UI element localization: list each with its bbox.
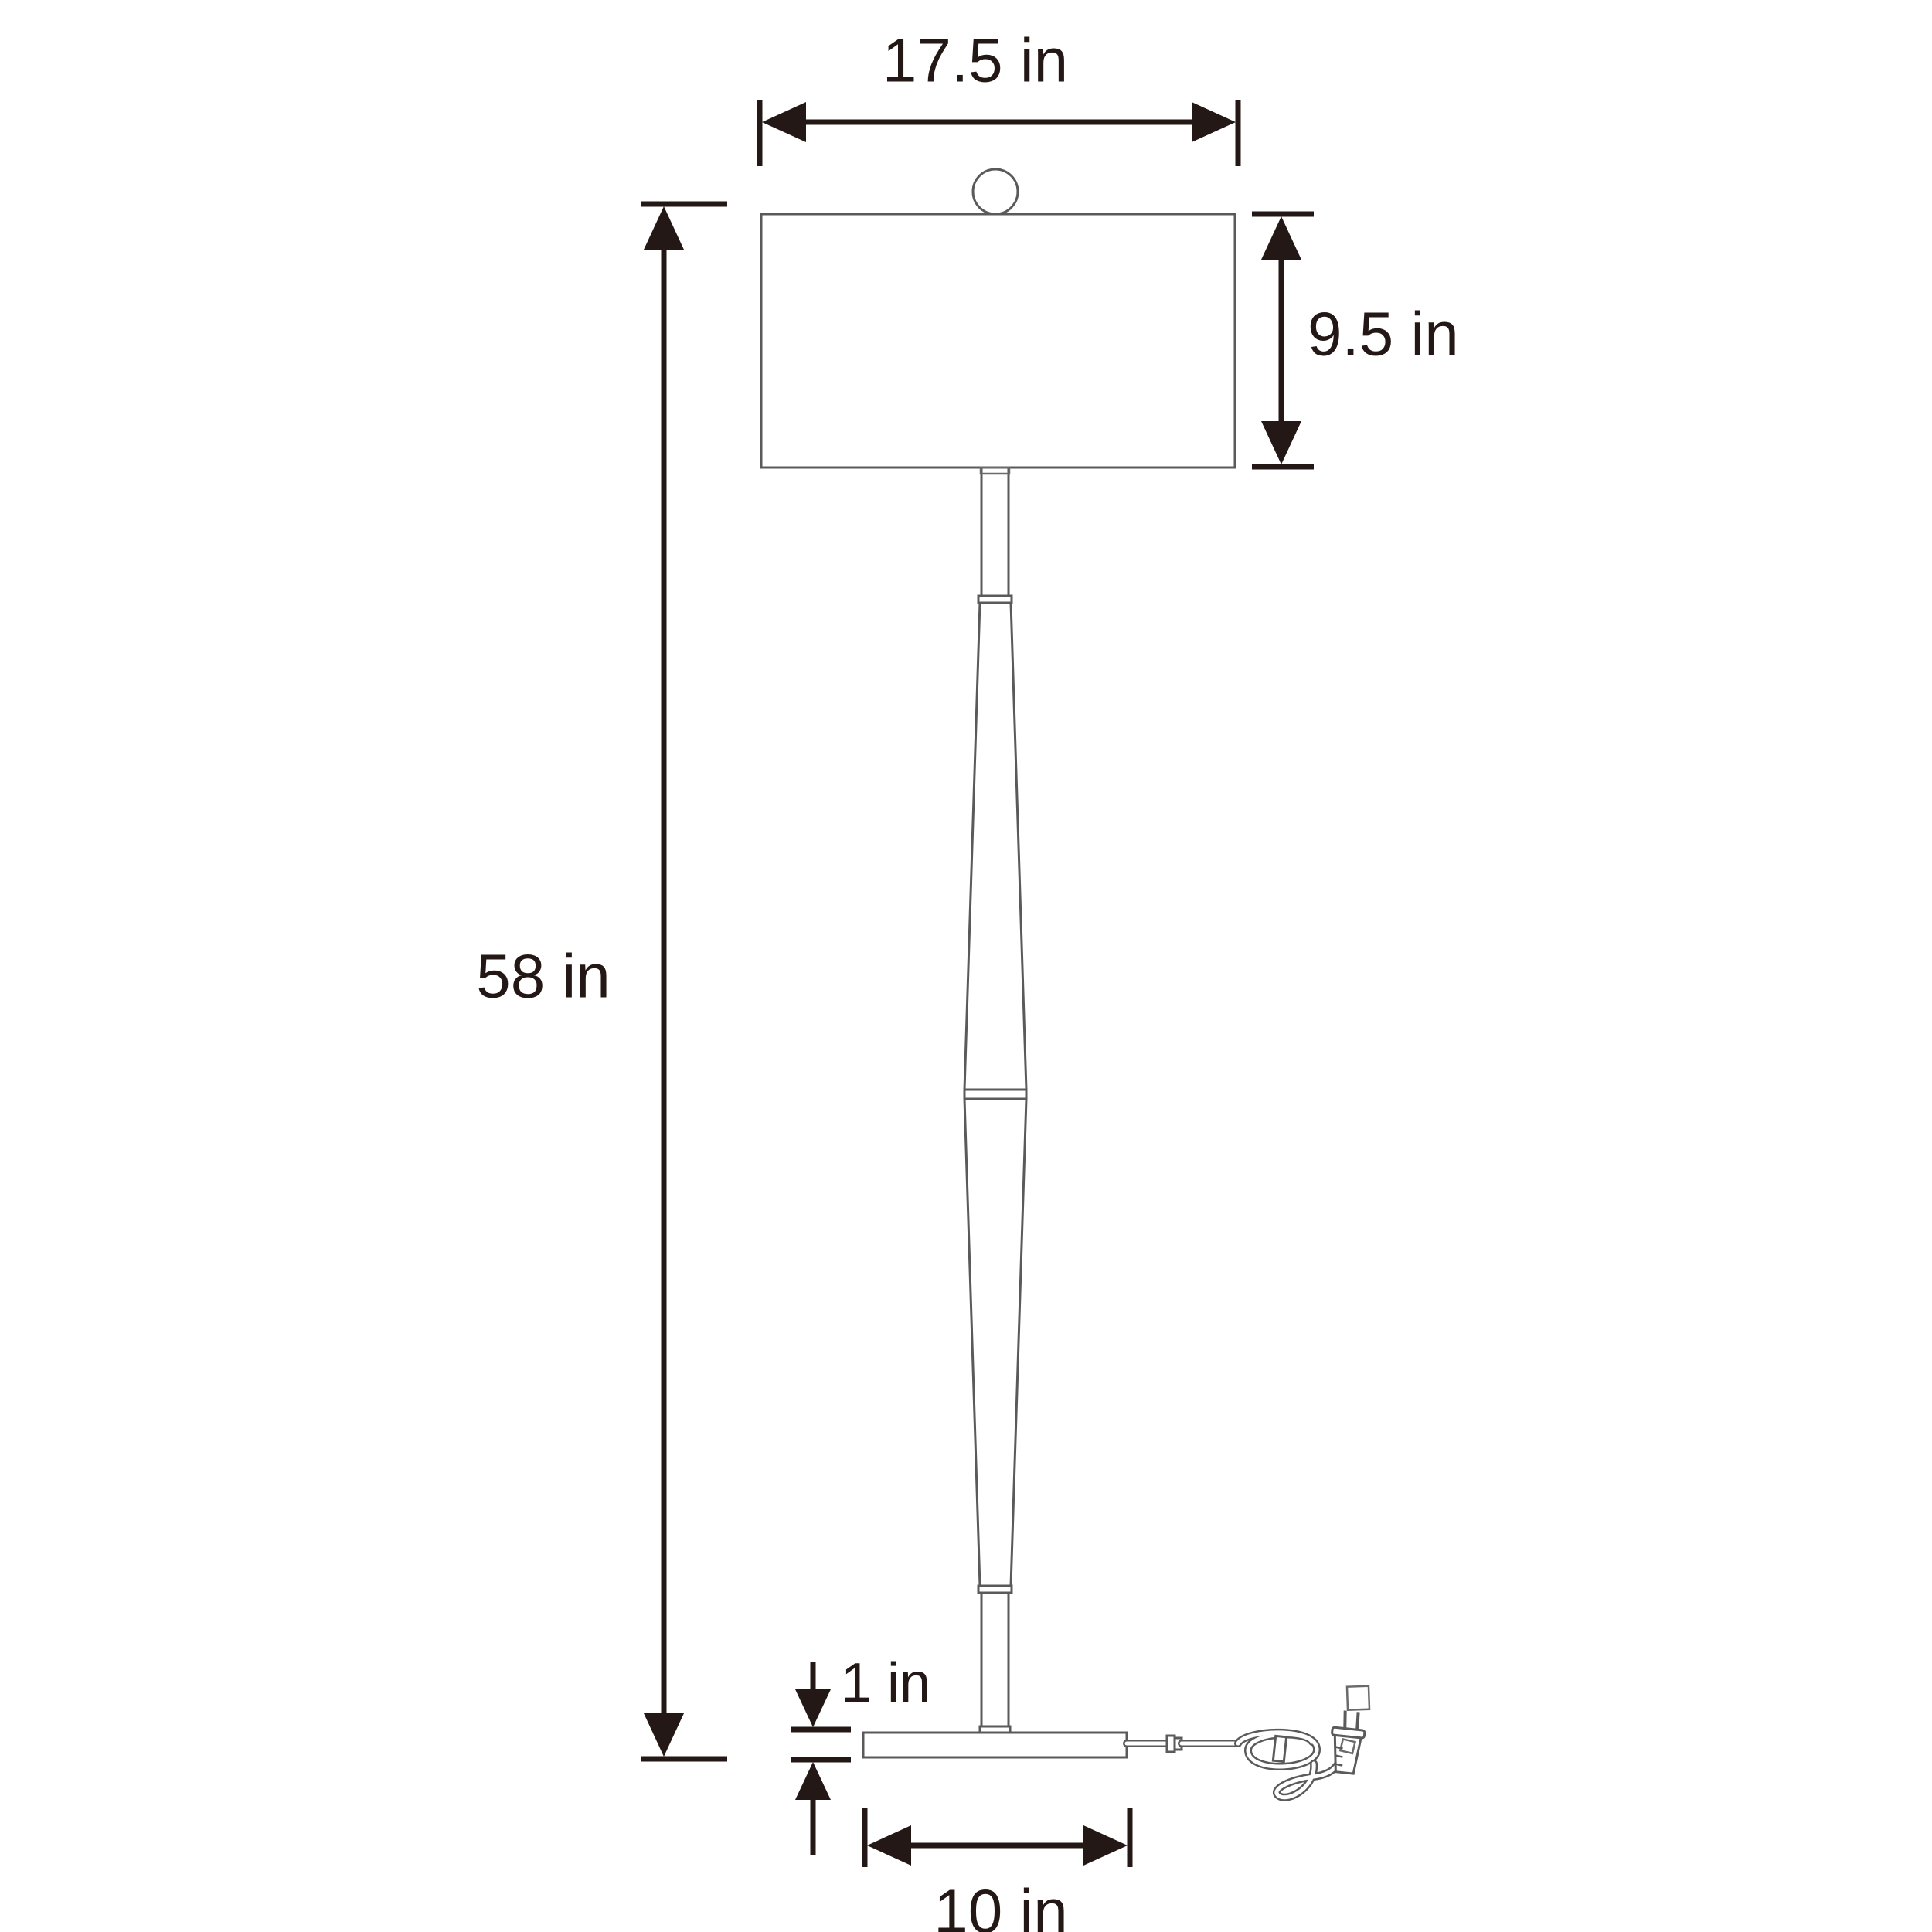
bottom-rod: [981, 1593, 1009, 1726]
arrowhead-top-icon: [644, 206, 684, 250]
column-joint: [964, 1090, 1026, 1099]
power-cord: [1127, 1733, 1343, 1798]
neck-rod: [981, 468, 1009, 596]
finial-ball: [973, 169, 1018, 214]
dim-label-base-width: 10 in: [934, 1877, 1067, 1932]
plug-prong-cover: [1347, 1686, 1369, 1710]
dim-shade-height: 9.5 in: [1252, 214, 1459, 467]
lower-column: [964, 1099, 1026, 1586]
arrowhead-right-icon: [1083, 1825, 1128, 1866]
arrowhead-bottom-icon: [644, 1713, 684, 1757]
arrowhead-left-icon: [867, 1825, 911, 1866]
arrowhead-right-icon: [1192, 102, 1236, 142]
dim-label-base-height: 1 in: [841, 1652, 930, 1714]
dim-lamp-height: 58 in: [476, 204, 727, 1759]
lower-arrowhead-icon: [795, 1762, 831, 1800]
plug-prong-left: [1343, 1711, 1346, 1729]
upper-column: [964, 603, 1026, 1090]
lamp-dimension-diagram: 17.5 in 9.5 in 58 in 1 in 10 in: [0, 0, 1932, 1932]
power-plug: [1328, 1682, 1372, 1774]
arrowhead-bottom-icon: [1261, 421, 1301, 464]
upper-arrowhead-icon: [795, 1689, 831, 1727]
arrowhead-top-icon: [1261, 216, 1301, 260]
dim-shade-width: 17.5 in: [760, 26, 1238, 167]
lamp-shade: [761, 214, 1235, 468]
dim-label-lamp-height: 58 in: [476, 942, 610, 1011]
cord-tie-band: [1273, 1736, 1286, 1761]
lamp-base: [863, 1733, 1127, 1757]
dim-label-shade-height: 9.5 in: [1308, 300, 1459, 369]
dim-base-width: 10 in: [865, 1808, 1130, 1932]
plug-prong-right: [1356, 1712, 1359, 1730]
dim-label-shade-width: 17.5 in: [883, 26, 1068, 95]
arrowhead-left-icon: [762, 102, 806, 142]
